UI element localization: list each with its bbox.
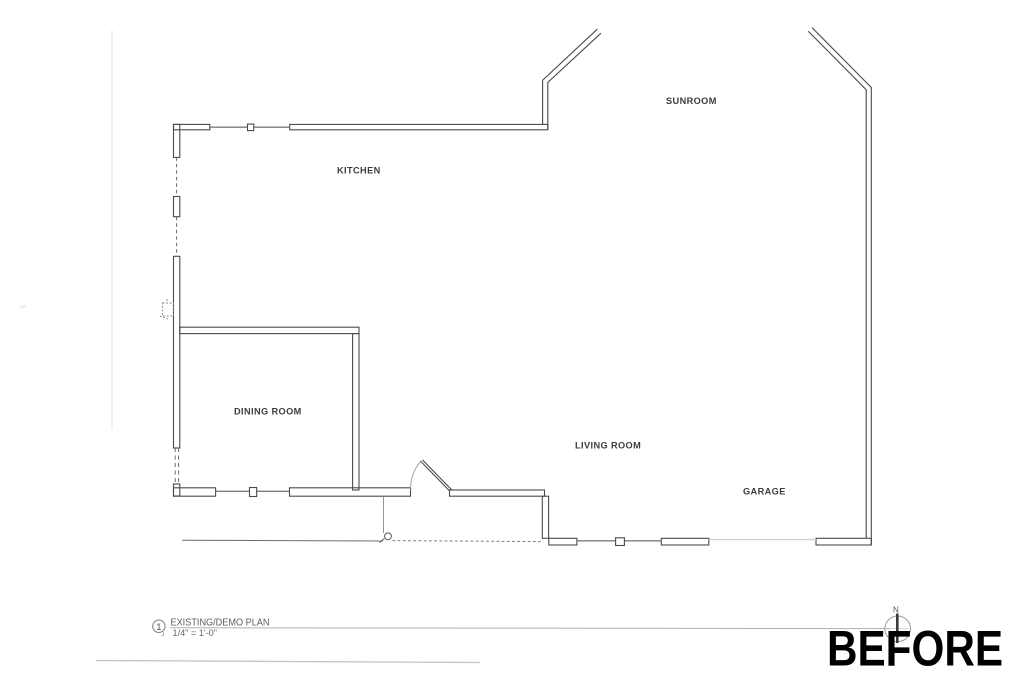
svg-text:EXISTING/DEMO PLAN: EXISTING/DEMO PLAN [171, 617, 270, 629]
svg-text:GARAGE: GARAGE [743, 487, 786, 497]
svg-text:LIVING ROOM: LIVING ROOM [575, 441, 641, 451]
svg-text:SUNROOM: SUNROOM [666, 96, 717, 106]
svg-text:1: 1 [156, 622, 161, 633]
svg-text:DINING ROOM: DINING ROOM [234, 407, 302, 417]
svg-text:N: N [893, 606, 899, 615]
svg-text:KITCHEN: KITCHEN [337, 166, 381, 176]
svg-text:1/4" = 1'-0": 1/4" = 1'-0" [173, 628, 218, 638]
svg-text:BEFORE: BEFORE [827, 621, 1003, 677]
